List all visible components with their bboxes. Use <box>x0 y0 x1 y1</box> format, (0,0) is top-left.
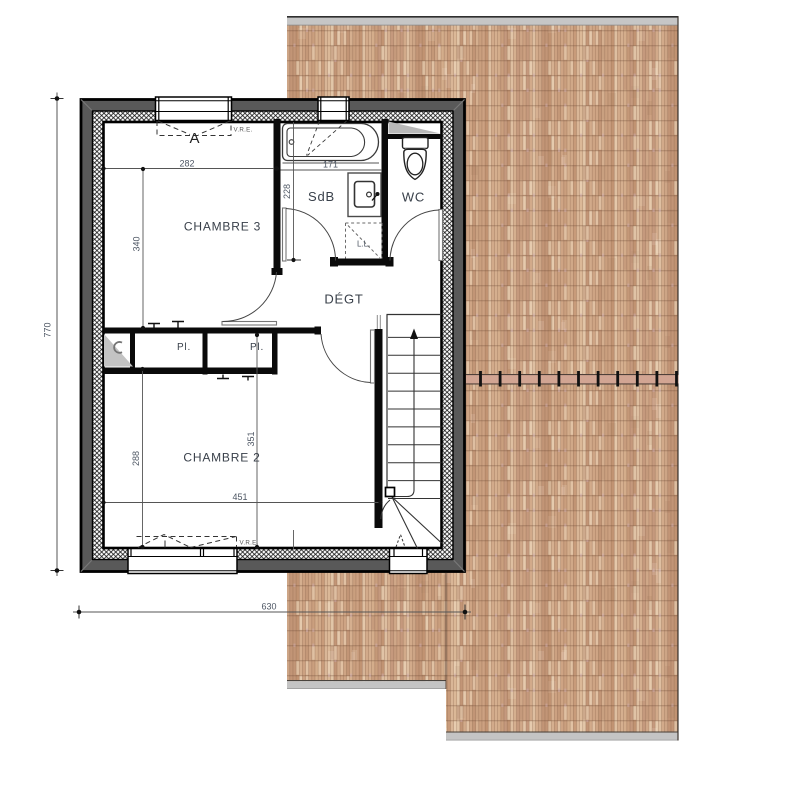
svg-text:340: 340 <box>132 236 142 251</box>
svg-text:282: 282 <box>179 159 194 169</box>
svg-text:CHAMBRE 3: CHAMBRE 3 <box>184 220 261 234</box>
svg-text:DÉGT: DÉGT <box>324 292 363 307</box>
svg-text:V.R.E.: V.R.E. <box>234 127 253 134</box>
svg-text:351: 351 <box>246 431 256 446</box>
svg-text:630: 630 <box>261 602 276 612</box>
svg-text:451: 451 <box>232 492 247 502</box>
svg-text:Pl.: Pl. <box>250 342 264 353</box>
svg-text:288: 288 <box>131 451 141 466</box>
svg-text:171: 171 <box>323 160 338 170</box>
svg-text:L.L.: L.L. <box>357 240 370 249</box>
svg-text:WC: WC <box>402 190 425 205</box>
svg-text:770: 770 <box>43 322 53 337</box>
svg-text:Pl.: Pl. <box>177 342 191 353</box>
svg-text:SdB: SdB <box>308 189 335 204</box>
svg-text:228: 228 <box>282 184 292 199</box>
svg-text:CHAMBRE 2: CHAMBRE 2 <box>183 451 260 465</box>
svg-text:A: A <box>189 130 199 147</box>
